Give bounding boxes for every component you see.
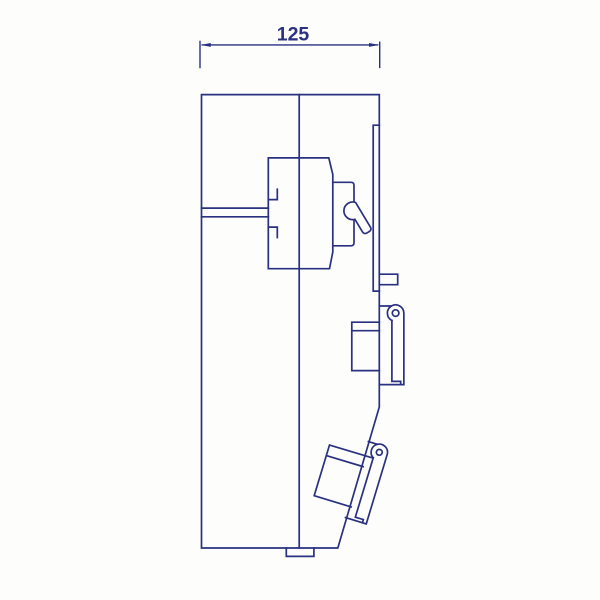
- svg-text:125: 125: [277, 24, 310, 46]
